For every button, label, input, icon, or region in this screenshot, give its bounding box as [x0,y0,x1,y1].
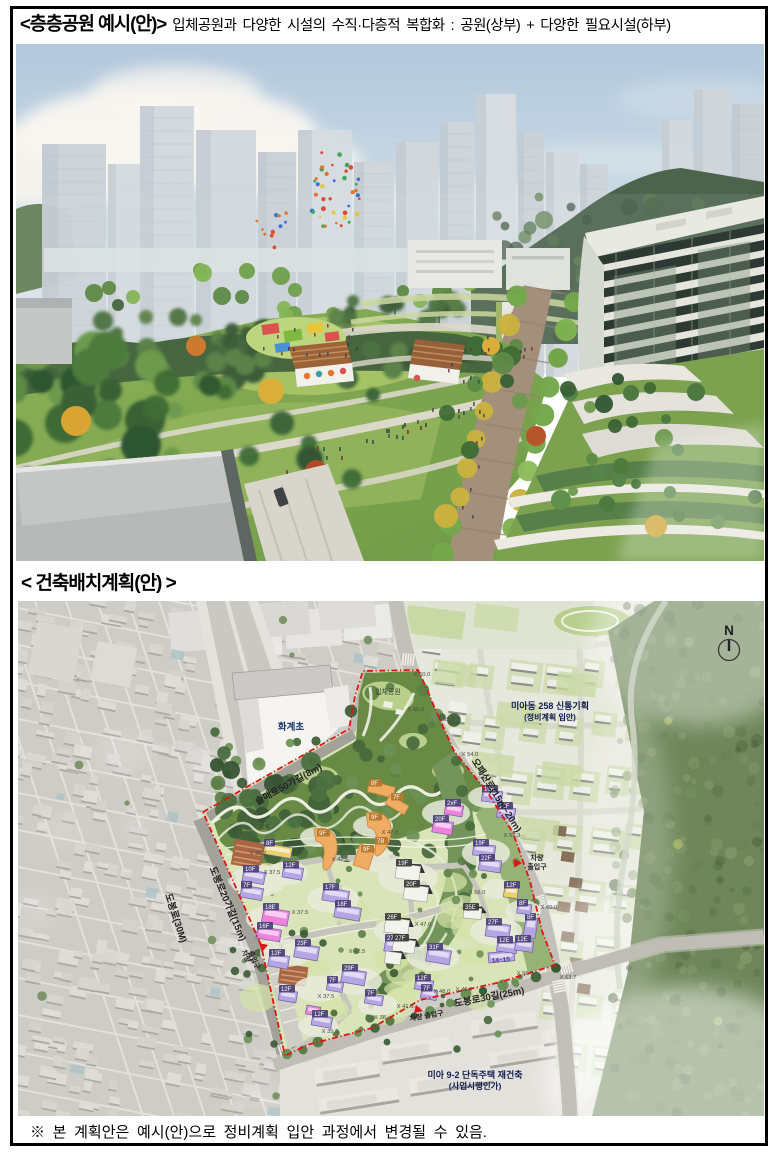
svg-text:X 48.0: X 48.0 [434,989,451,995]
svg-text:12F: 12F [285,863,296,869]
svg-text:차량: 차량 [531,853,544,862]
svg-text:8F: 8F [371,781,378,787]
svg-text:7F: 7F [243,883,250,889]
svg-text:7F: 7F [423,986,430,992]
svg-text:35E: 35E [465,905,476,911]
svg-text:19F: 19F [475,841,486,847]
svg-text:X 56.0: X 56.0 [517,971,534,977]
svg-text:20F: 20F [435,817,446,823]
svg-text:9F: 9F [363,847,370,853]
svg-text:X 37.5: X 37.5 [264,870,281,876]
svg-text:N: N [724,623,734,638]
svg-text:미아 9-2 단독주택 재건축: 미아 9-2 단독주택 재건축 [427,1069,522,1080]
svg-text:X 35.6: X 35.6 [322,1029,339,1035]
svg-text:23F: 23F [297,941,308,947]
svg-text:7B: 7B [377,839,384,845]
svg-text:X 47.0: X 47.0 [415,922,432,928]
svg-text:X 60.0: X 60.0 [541,905,558,911]
svg-text:8F: 8F [266,841,273,847]
svg-text:19F: 19F [398,861,409,867]
svg-text:22F: 22F [481,856,492,862]
svg-text:12F: 12F [417,976,428,982]
svg-text:X 60.0: X 60.0 [414,672,431,678]
svg-text:X 63.7: X 63.7 [560,975,577,981]
svg-text:(정비계획 입안): (정비계획 입안) [524,712,576,722]
svg-text:10F: 10F [245,867,256,873]
svg-text:X 38: X 38 [374,1015,386,1021]
svg-text:7F: 7F [367,991,374,997]
svg-text:X 41.0: X 41.0 [397,1004,414,1010]
svg-text:8F: 8F [527,915,534,921]
svg-text:X 47.0: X 47.0 [382,830,399,836]
svg-text:12F: 12F [271,951,282,957]
svg-text:정원: 정원 [258,823,269,831]
svg-text:7F: 7F [393,795,400,801]
svg-text:7F: 7F [329,978,336,984]
svg-text:X 60.0: X 60.0 [408,707,425,713]
svg-text:X 35.2: X 35.2 [250,851,267,857]
svg-text:X 42.5: X 42.5 [332,857,349,863]
svg-text:27F: 27F [395,936,406,942]
svg-text:2xF: 2xF [447,801,457,807]
svg-text:16F: 16F [259,924,270,930]
svg-text:9F: 9F [319,831,326,837]
svg-text:29F: 29F [344,966,355,972]
svg-text:12F: 12F [506,883,517,889]
svg-text:12E: 12E [517,937,528,943]
svg-text:X 57.3: X 57.3 [504,833,521,839]
svg-text:X 37.5: X 37.5 [318,994,335,1000]
svg-text:8F: 8F [519,901,526,907]
svg-text:12F: 12F [314,1012,325,1018]
svg-text:9F: 9F [371,815,378,821]
svg-text:X 42.5: X 42.5 [349,949,366,955]
svg-text:미아동 258 신통기획: 미아동 258 신통기획 [511,700,589,711]
svg-text:12F: 12F [281,987,292,993]
svg-text:20F: 20F [406,882,417,888]
svg-text:18E: 18E [265,905,276,911]
svg-text:18F: 18F [337,902,348,908]
svg-text:X 37.5: X 37.5 [292,910,309,916]
svg-text:X 55.0: X 55.0 [438,717,455,723]
svg-text:27F: 27F [488,920,499,926]
svg-text:X 56.0: X 56.0 [469,890,486,896]
svg-text:X 54.0: X 54.0 [462,752,479,758]
svg-text:12E: 12E [499,938,510,944]
svg-text:17F: 17F [325,885,336,891]
svg-text:X 46.0: X 46.0 [456,987,473,993]
svg-text:26F: 26F [387,915,398,921]
svg-text:화계초: 화계초 [278,721,304,733]
svg-text:(사업시행인가): (사업시행인가) [449,1081,502,1091]
svg-text:입체공원: 입체공원 [375,687,401,696]
svg-text:출입구: 출입구 [527,862,547,871]
svg-text:31F: 31F [429,945,440,951]
